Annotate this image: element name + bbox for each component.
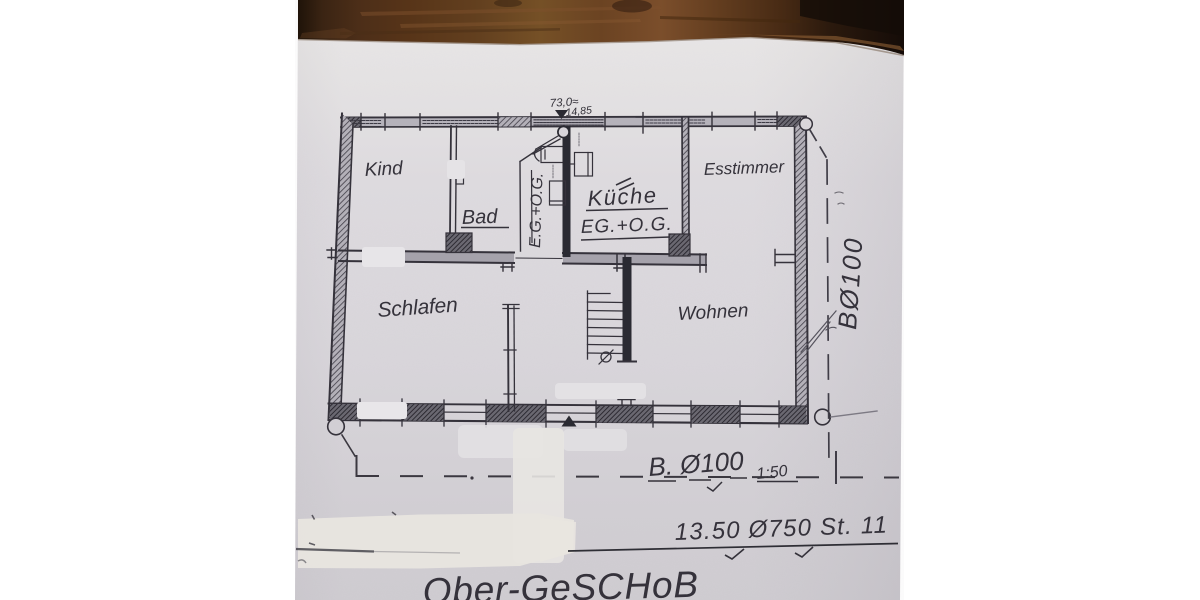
svg-text:EG.+O.G.: EG.+O.G. — [580, 214, 673, 238]
svg-text:Esstimmer: Esstimmer — [703, 157, 785, 179]
svg-text:E.G.+O.G.: E.G.+O.G. — [527, 172, 547, 248]
svg-text:Bad: Bad — [461, 206, 498, 229]
svg-text:Ober-GeSCHoB: Ober-GeSCHoB — [422, 564, 699, 600]
svg-text:Küche: Küche — [587, 182, 658, 211]
svg-text:1:50: 1:50 — [756, 463, 789, 483]
svg-text:Kind: Kind — [364, 158, 405, 181]
svg-text:Wohnen: Wohnen — [677, 300, 749, 325]
